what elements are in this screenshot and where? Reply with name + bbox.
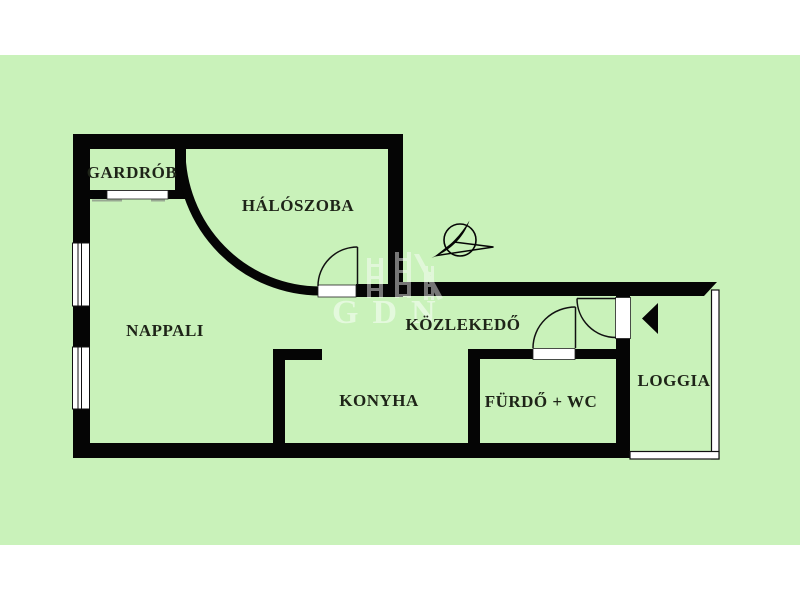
loggia-railing-bottom — [630, 452, 719, 460]
room-label-furdo-wc: FÜRDŐ + WC — [485, 392, 598, 412]
room-label-konyha: KONYHA — [339, 391, 419, 411]
compass-tail — [437, 242, 494, 256]
door-arc-bathroom — [533, 307, 576, 348]
wall-kitchen-top-stub — [273, 349, 322, 360]
opening-bathroom — [533, 349, 575, 360]
wall-bottom — [73, 443, 630, 458]
north-compass-icon — [432, 221, 494, 259]
room-label-haloszoba: HÁLÓSZOBA — [242, 196, 354, 216]
wall-top — [73, 134, 403, 149]
opening-gardrob — [107, 191, 168, 200]
door-arc-entrance — [577, 299, 616, 338]
room-label-gardrob: GARDRÓB — [87, 163, 177, 183]
room-label-nappali: NAPPALI — [126, 321, 204, 341]
wall-corridor-top — [403, 282, 717, 296]
room-label-kozlekedo: KÖZLEKEDŐ — [405, 315, 520, 335]
compass-circle — [444, 224, 476, 256]
loggia-railing-right — [712, 290, 720, 459]
door-arc-bedroom — [318, 247, 358, 286]
room-label-loggia: LOGGIA — [638, 371, 711, 391]
wall-kitchen-left — [273, 349, 285, 443]
wall-bathroom-left — [468, 349, 480, 443]
entrance-arrow-icon — [642, 303, 658, 334]
floorplan-canvas: GDN GARDRÓB HÁLÓSZOBA NAPPALI KÖZLEKEDŐ … — [0, 0, 800, 600]
opening-entrance — [616, 298, 631, 339]
wall-bedroom-curved — [181, 150, 320, 291]
